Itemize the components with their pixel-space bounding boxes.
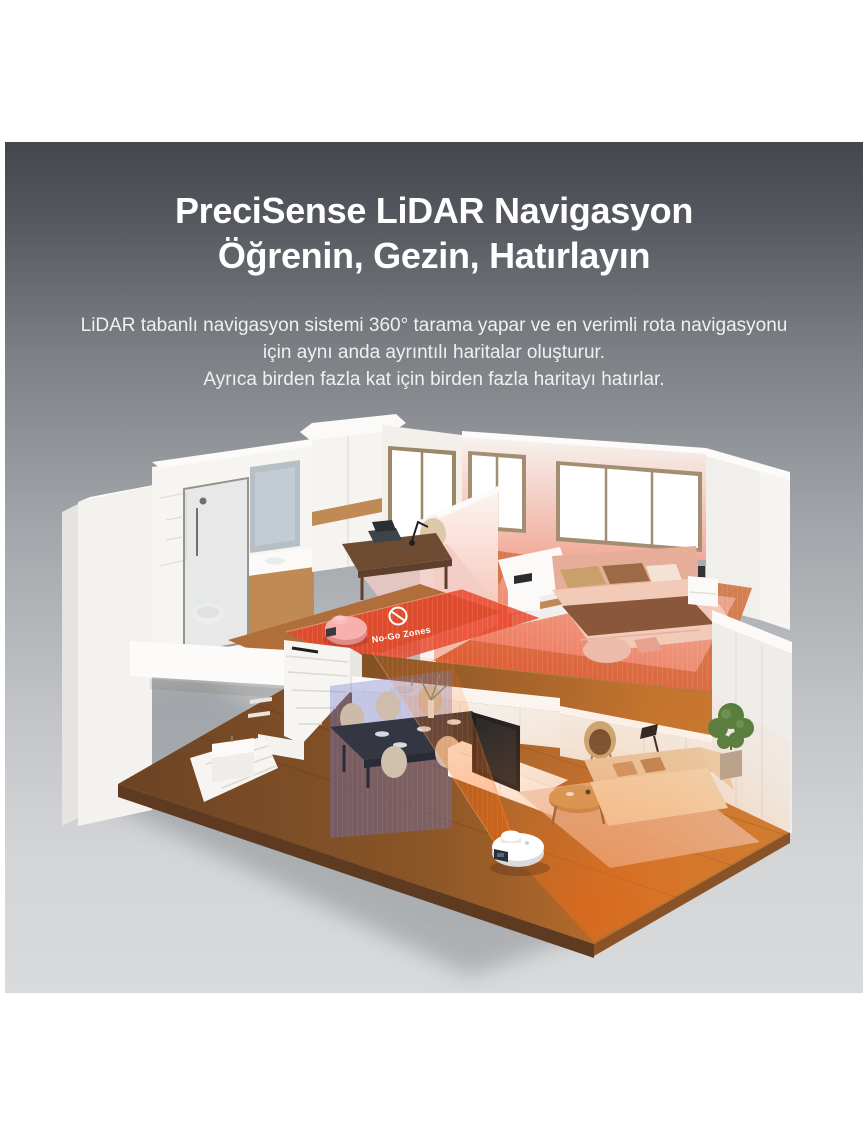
pouf: [583, 637, 631, 663]
marketing-page: PreciSense LiDAR Navigasyon Öğrenin, Gez…: [0, 0, 868, 1139]
shower: [184, 478, 248, 654]
bedroom-window-right: [556, 461, 702, 552]
lidar-turret: [501, 831, 521, 842]
bedroom-back-wall: [462, 431, 706, 560]
house-cutaway-illustration: No-Go Zones: [0, 0, 868, 1139]
bathroom-sink: [265, 558, 285, 565]
